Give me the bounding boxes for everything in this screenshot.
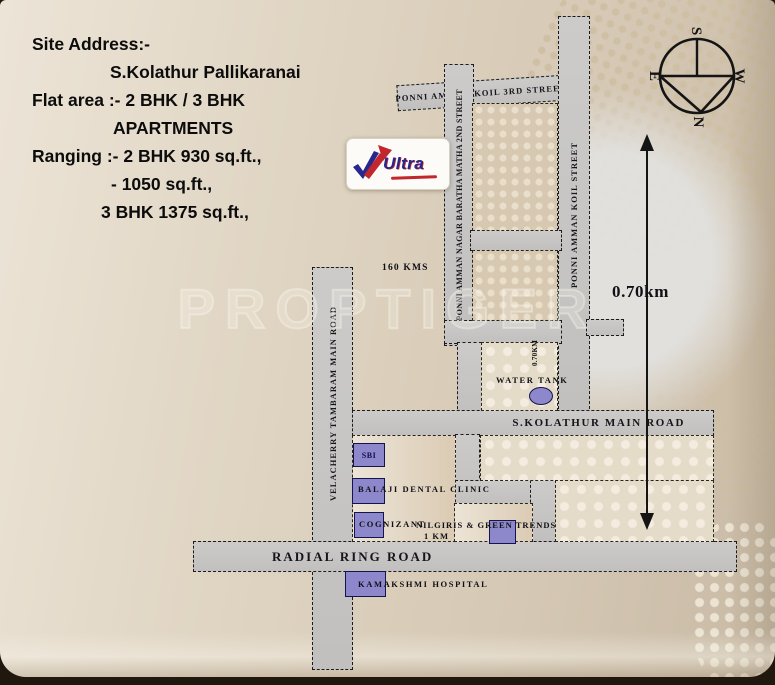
road-koil-street-east-stub <box>586 319 624 336</box>
site-location-map: PROPTIGER PONNI AMMAN KOIL 3RD STREET PO… <box>0 0 775 685</box>
road-label-s-kolathur: S.KOLATHUR MAIN ROAD <box>512 417 685 429</box>
road-label-koil-street: PONNI AMMAN KOIL STREET <box>569 142 579 288</box>
compass-north-letter: N <box>690 117 706 128</box>
road-cross-connector-upper <box>470 230 562 251</box>
ultra-logo-underline <box>391 175 437 179</box>
distance-arrow <box>646 149 648 515</box>
compass-icon: S E W N <box>648 24 748 137</box>
road-2nd-street-south-extension <box>457 342 482 414</box>
compass-west-letter: W <box>731 69 747 84</box>
balaji-dental-clinic-label: BALAJI DENTAL CLINIC <box>358 484 490 494</box>
water-tank-marker <box>529 387 553 405</box>
road-label-velacherry: VELACHERRY TAMBARAM MAIN ROAD <box>328 306 338 501</box>
ranging-line-3: 3 BHK 1375 sq.ft., <box>101 202 249 223</box>
ultra-logo-text: Ultra <box>383 154 424 174</box>
city-block-middle <box>472 250 558 321</box>
road-label-3rd-street: PONNI AMMAN KOIL 3RD STREET <box>395 83 567 104</box>
road-s-kolathur-main-road: S.KOLATHUR MAIN ROAD <box>352 410 714 436</box>
road-velacherry-tambaram-main-road: VELACHERRY TAMBARAM MAIN ROAD <box>312 267 353 670</box>
distance-arrow-down-icon <box>640 513 654 530</box>
road-label-radial-ring: RADIAL RING ROAD <box>272 549 433 565</box>
compass-east-letter: E <box>648 71 662 81</box>
road-baratha-matha-2nd-street: PONNI AMMAN NAGAR BARATHA MATHA 2ND STRE… <box>444 64 474 346</box>
road-label-2nd-street: PONNI AMMAN NAGAR BARATHA MATHA 2ND STRE… <box>455 89 464 321</box>
distance-070km-label: 0.70km <box>612 282 669 302</box>
ranging-line-2: - 1050 sq.ft., <box>111 174 212 195</box>
city-block-right-lower <box>555 480 714 542</box>
kamakshmi-hospital-label: KAMAKSHMI HOSPITAL <box>358 579 488 589</box>
site-address-value: S.Kolathur Pallikaranai <box>110 62 301 83</box>
distance-070km-small-label: 0.70KM <box>531 330 539 366</box>
water-tank-label: WATER TANK <box>496 375 568 385</box>
compass-south-letter: S <box>688 27 704 35</box>
road-radial-ring-road: RADIAL RING ROAD <box>193 541 737 572</box>
city-block-upper <box>472 103 558 231</box>
city-block-right-upper <box>480 435 714 481</box>
apartments-line: APARTMENTS <box>113 118 233 139</box>
nilgiris-green-trends-label: NILGIRIS & GREEN TRENDS <box>416 520 556 530</box>
sbi-building: SBI <box>353 443 385 467</box>
ranging-line: Ranging :- 2 BHK 930 sq.ft., <box>32 146 261 167</box>
road-step-connector-v2 <box>530 480 556 542</box>
road-cross-connector-lower <box>444 320 562 344</box>
flat-area-line: Flat area :- 2 BHK / 3 BHK <box>32 90 245 111</box>
bottom-light-band <box>0 632 775 677</box>
ultra-logo: Ultra <box>346 138 450 190</box>
distance-160kms-label: 160 KMS <box>382 263 429 273</box>
site-address-title: Site Address:- <box>32 34 150 55</box>
map-card: PROPTIGER PONNI AMMAN KOIL 3RD STREET PO… <box>0 0 775 677</box>
sbi-label: SBI <box>362 451 376 460</box>
road-ponni-amman-koil-street: PONNI AMMAN KOIL STREET <box>558 16 590 414</box>
nilgiris-distance-label: 1 KM <box>424 531 449 541</box>
